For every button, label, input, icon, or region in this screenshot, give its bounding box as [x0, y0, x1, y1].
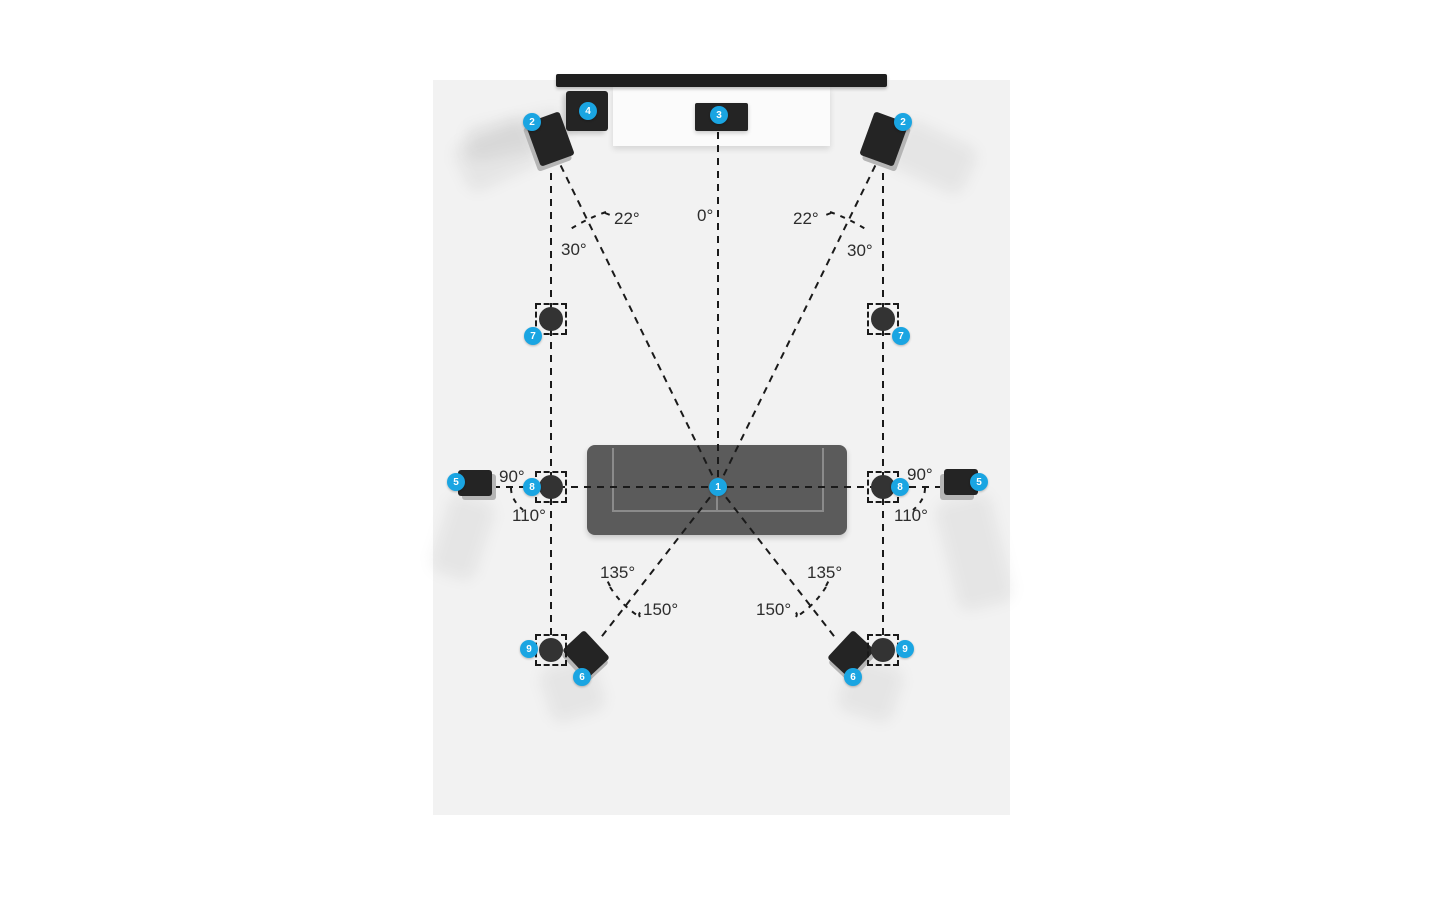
angle-label-side-max-left: 110°: [512, 506, 546, 526]
badge-subwoofer: 4: [579, 102, 597, 120]
angle-label-front-min-right: 22°: [793, 209, 819, 229]
angle-label-side-min-left: 90°: [499, 467, 525, 487]
angle-label-rear-min-left: 135°: [600, 563, 635, 583]
badge-height-rear-left: 9: [520, 640, 538, 658]
badge-rear-right: 6: [844, 668, 862, 686]
height-speaker-dot: [539, 307, 563, 331]
badge-height-front-left: 7: [524, 327, 542, 345]
badge-height-middle-left: 8: [523, 478, 541, 496]
angle-label-front-min-left: 22°: [614, 209, 640, 229]
badge-rear-left: 6: [573, 668, 591, 686]
tv: [556, 74, 887, 87]
angle-label-rear-min-right: 135°: [807, 563, 842, 583]
angle-label-side-max-right: 110°: [894, 506, 928, 526]
speaker-placement-diagram: 1 2 2 3 4 5 5 6 6 7 7 8 8 9 9 0° 22° 30°…: [0, 0, 1440, 900]
angle-label-center: 0°: [697, 206, 713, 226]
height-speaker-dot: [871, 638, 895, 662]
badge-side-left: 5: [447, 473, 465, 491]
height-speaker-dot: [539, 475, 563, 499]
height-speaker-dot: [539, 638, 563, 662]
height-speaker-rear-right: [867, 634, 899, 666]
angle-label-rear-max-left: 150°: [643, 600, 678, 620]
badge-center-speaker: 3: [710, 106, 728, 124]
badge-height-rear-right: 9: [896, 640, 914, 658]
angle-label-front-max-right: 30°: [847, 241, 873, 261]
badge-front-left: 2: [523, 113, 541, 131]
angle-label-front-max-left: 30°: [561, 240, 587, 260]
badge-front-right: 2: [894, 113, 912, 131]
badge-side-right: 5: [970, 473, 988, 491]
height-speaker-rear-left: [535, 634, 567, 666]
angle-label-side-min-right: 90°: [907, 465, 933, 485]
badge-listening-position: 1: [709, 478, 727, 496]
badge-height-front-right: 7: [892, 327, 910, 345]
height-speaker-dot: [871, 307, 895, 331]
angle-label-rear-max-right: 150°: [756, 600, 791, 620]
